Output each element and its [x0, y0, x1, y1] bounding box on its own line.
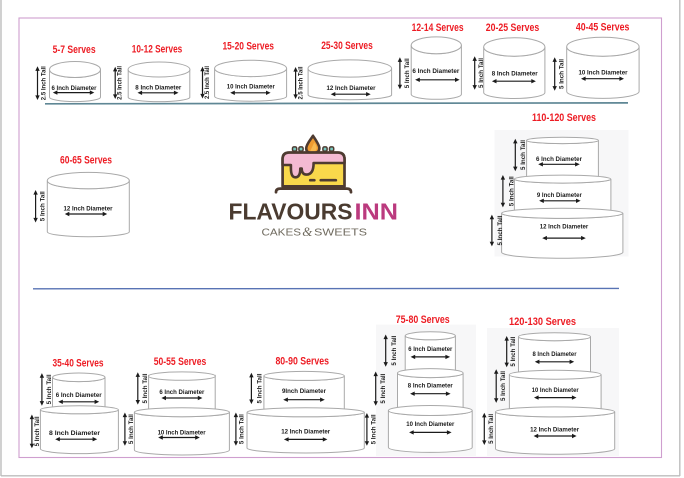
svg-text:5 Inch Tall: 5 Inch Tall — [391, 335, 398, 365]
svg-text:10 Inch Diameter: 10 Inch Diameter — [532, 387, 580, 394]
svg-text:5 Inch Tall: 5 Inch Tall — [497, 215, 504, 245]
svg-text:10-12 Serves: 10-12 Serves — [132, 44, 183, 56]
svg-text:6 Inch Diameter: 6 Inch Diameter — [536, 156, 583, 163]
svg-text:35-40 Serves: 35-40 Serves — [53, 358, 104, 370]
svg-text:15-20 Serves: 15-20 Serves — [222, 41, 274, 53]
svg-text:6 Inch Diameter: 6 Inch Diameter — [159, 389, 205, 396]
svg-text:5 Inch Tall: 5 Inch Tall — [46, 374, 53, 404]
svg-text:FLAVOURS: FLAVOURS — [229, 199, 353, 225]
svg-text:INN: INN — [355, 199, 399, 225]
svg-text:80-90 Serves: 80-90 Serves — [275, 356, 329, 368]
svg-text:5 Inch Tall: 5 Inch Tall — [500, 371, 507, 401]
svg-text:SWEETS: SWEETS — [314, 227, 367, 238]
svg-text:5 Inch Tall: 5 Inch Tall — [239, 414, 246, 444]
svg-text:5 Inch Tall: 5 Inch Tall — [558, 59, 565, 89]
svg-text:9 Inch Diameter: 9 Inch Diameter — [537, 192, 583, 199]
svg-text:5 Inch Tall: 5 Inch Tall — [510, 336, 517, 366]
svg-text:5 Inch Tall: 5 Inch Tall — [520, 140, 527, 170]
svg-text:8 Inch Diameter: 8 Inch Diameter — [49, 430, 101, 437]
svg-text:6 Inch Diameter: 6 Inch Diameter — [412, 68, 460, 75]
svg-text:10 Inch Diameter: 10 Inch Diameter — [227, 84, 276, 91]
svg-text:&: & — [302, 224, 313, 239]
svg-text:40-45 Serves: 40-45 Serves — [576, 22, 630, 34]
svg-text:5 Inch Tall: 5 Inch Tall — [40, 191, 47, 221]
svg-text:5 Inch Tall: 5 Inch Tall — [128, 414, 135, 444]
svg-text:110-120 Serves: 110-120 Serves — [532, 112, 596, 124]
svg-text:5 Inch Tall: 5 Inch Tall — [371, 414, 378, 444]
svg-text:2.5 Inch Tall: 2.5 Inch Tall — [117, 66, 124, 100]
svg-text:120-130 Serves: 120-130 Serves — [509, 316, 576, 328]
svg-text:12-14 Serves: 12-14 Serves — [412, 22, 464, 34]
svg-text:12 Inch Diameter: 12 Inch Diameter — [281, 429, 331, 436]
svg-text:12 Inch Diameter: 12 Inch Diameter — [530, 426, 580, 433]
svg-text:5 Inch Tall: 5 Inch Tall — [256, 373, 263, 403]
svg-text:60-65 Serves: 60-65 Serves — [60, 155, 112, 167]
svg-text:20-25 Serves: 20-25 Serves — [486, 22, 540, 34]
svg-text:2.5 Inch Tall: 2.5 Inch Tall — [298, 66, 305, 99]
svg-text:5 Inch Tall: 5 Inch Tall — [478, 58, 485, 88]
svg-text:5 Inch Tall: 5 Inch Tall — [404, 58, 411, 88]
svg-text:6 Inch Diameter: 6 Inch Diameter — [408, 346, 453, 353]
svg-text:5 Inch Tall: 5 Inch Tall — [142, 373, 149, 403]
svg-text:5 Inch Tall: 5 Inch Tall — [380, 373, 387, 403]
svg-text:12 Inch Diameter: 12 Inch Diameter — [64, 206, 114, 213]
svg-text:2.5 Inch Tall: 2.5 Inch Tall — [40, 66, 47, 100]
svg-text:75-80 Serves: 75-80 Serves — [396, 314, 450, 326]
svg-text:5 Inch Tall: 5 Inch Tall — [488, 414, 495, 444]
svg-text:10 Inch Diameter: 10 Inch Diameter — [158, 430, 207, 437]
svg-text:10 Inch Diameter: 10 Inch Diameter — [406, 421, 455, 428]
svg-text:6 Inch Diameter: 6 Inch Diameter — [56, 392, 103, 399]
svg-text:2.5 Inch Tall: 2.5 Inch Tall — [204, 66, 211, 99]
svg-text:8 Inch Diameter: 8 Inch Diameter — [492, 71, 539, 78]
svg-text:12 Inch Diameter: 12 Inch Diameter — [327, 85, 377, 92]
svg-text:8 Inch Diameter: 8 Inch Diameter — [533, 351, 578, 358]
svg-text:50-55 Serves: 50-55 Serves — [154, 356, 207, 368]
svg-text:10 Inch Diameter: 10 Inch Diameter — [579, 70, 629, 77]
svg-text:9Inch Diameter: 9Inch Diameter — [282, 388, 327, 395]
svg-text:5-7 Serves: 5-7 Serves — [53, 44, 96, 56]
svg-text:8 Inch Diameter: 8 Inch Diameter — [135, 85, 182, 92]
svg-text:5 Inch Tall: 5 Inch Tall — [508, 176, 515, 206]
svg-text:12 Inch Diameter: 12 Inch Diameter — [540, 224, 589, 231]
svg-text:8 Inch Diameter: 8 Inch Diameter — [408, 383, 454, 390]
svg-text:25-30 Serves: 25-30 Serves — [321, 40, 373, 52]
svg-text:5 Inch Tall: 5 Inch Tall — [34, 416, 41, 446]
svg-text:CAKES: CAKES — [262, 227, 302, 238]
